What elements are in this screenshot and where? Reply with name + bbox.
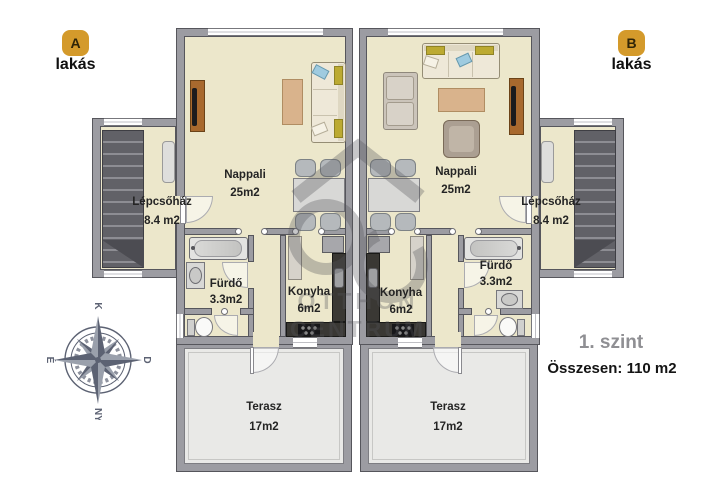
room-name: Fürdő (210, 278, 243, 290)
wall (184, 228, 238, 235)
room-area: 6m2 (389, 304, 412, 316)
unit-b-badge: B (618, 30, 645, 56)
door-leaf (458, 347, 462, 374)
room-name: Lépcsőház (132, 196, 191, 208)
bathtub-basin (194, 240, 242, 257)
window (104, 270, 142, 278)
compass-letter-right: D (141, 356, 152, 363)
floor-total-text: Összesen: 110 m2 (546, 360, 678, 377)
watermark-roof-icon (296, 148, 420, 197)
compass-letter-left: É (44, 357, 57, 364)
room-name: Konyha (380, 287, 422, 299)
room-name: Fürdő (480, 260, 513, 272)
room-area: 8.4 m2 (533, 215, 569, 227)
sofa-pillow (475, 46, 494, 55)
wall (184, 308, 212, 315)
room-area: 8.4 m2 (144, 215, 180, 227)
wall (458, 308, 472, 315)
compass-rose: K D NY É (42, 296, 154, 420)
loveseat-cushion (386, 102, 414, 126)
radiator-a (162, 141, 175, 183)
room-area: 17m2 (249, 421, 278, 433)
unit-a-label: lakás (45, 56, 106, 74)
toilet-tank (187, 319, 195, 336)
coffee-table (438, 88, 485, 112)
room-area: 25m2 (441, 184, 470, 196)
sofa-pillow (334, 66, 343, 85)
unit-a-badge: A (62, 30, 89, 56)
sofa-seam (313, 115, 337, 116)
armchair-cushion (449, 126, 474, 152)
door-leaf (250, 347, 254, 374)
room-label-lepcsohaz-a: Lépcsőház 8.4 m2 (132, 196, 191, 227)
sofa-seam (448, 52, 449, 77)
bathtub-basin (470, 240, 518, 257)
coffee-table (282, 79, 303, 125)
door-knob (449, 228, 456, 235)
toilet-bowl (499, 317, 517, 337)
room-label-konyha-a: Konyha 6m2 (288, 286, 330, 315)
radiator-b (541, 141, 554, 183)
room-label-terasz-a: Terasz 17m2 (246, 401, 282, 433)
watermark-text-2: CENTRUM (290, 316, 426, 342)
unit-a-badge-letter: A (70, 35, 80, 51)
window (388, 28, 503, 36)
room-label-konyha-b: Konyha 6m2 (380, 287, 422, 316)
unit-b-label: lakás (601, 56, 662, 74)
floor-plan: A lakás B lakás 1. szint Összesen: 110 m… (0, 0, 707, 500)
toilet-tank (517, 319, 525, 336)
window (176, 314, 184, 338)
wall (478, 228, 532, 235)
sofa-pillow (426, 46, 445, 55)
wall (500, 308, 532, 315)
room-name: Terasz (430, 401, 466, 413)
sink-basin (501, 293, 518, 306)
room-area: 3.3m2 (210, 294, 243, 306)
bathtub-faucet (517, 246, 521, 250)
door-knob (221, 308, 228, 315)
window (104, 118, 142, 126)
toilet-bowl (195, 317, 213, 337)
sofa-seam (313, 89, 337, 90)
room-label-nappali-b: Nappali 25m2 (435, 166, 477, 196)
room-label-nappali-a: Nappali 25m2 (224, 169, 266, 199)
door-knob (485, 308, 492, 315)
room-name: Nappali (224, 169, 266, 181)
wall (240, 308, 254, 315)
room-label-lepcsohaz-b: Lépcsőház 8.4 m2 (521, 196, 580, 227)
door-knob (261, 228, 268, 235)
tv (192, 88, 197, 126)
sofa-seam (472, 52, 473, 77)
wall (248, 235, 254, 262)
room-area: 17m2 (433, 421, 462, 433)
loveseat-cushion (386, 76, 414, 100)
tv (511, 86, 516, 126)
window (531, 314, 540, 338)
room-name: Konyha (288, 286, 330, 298)
sink-basin (189, 267, 202, 284)
door-knob (475, 228, 482, 235)
room-name: Nappali (435, 166, 477, 178)
bathtub-faucet (191, 246, 195, 250)
floor-level-text: 1. szint (551, 332, 671, 354)
window (574, 270, 612, 278)
watermark-letter-o (294, 205, 358, 269)
room-name: Terasz (246, 401, 282, 413)
room-label-furdo-b: Fürdő 3.3m2 (480, 260, 513, 288)
door-knob (235, 228, 242, 235)
room-label-furdo-a: Fürdő 3.3m2 (210, 278, 243, 306)
compass-letter-bottom: NY (92, 408, 103, 420)
window (574, 118, 612, 126)
compass-letter-top: K (92, 302, 103, 310)
room-label-terasz-b: Terasz 17m2 (430, 401, 466, 433)
room-area: 25m2 (230, 187, 259, 199)
unit-b-badge-letter: B (626, 35, 636, 51)
room-area: 3.3m2 (480, 276, 513, 288)
compass-center (95, 357, 101, 363)
room-name: Lépcsőház (521, 196, 580, 208)
room-area: 6m2 (297, 303, 320, 315)
window (208, 28, 323, 36)
